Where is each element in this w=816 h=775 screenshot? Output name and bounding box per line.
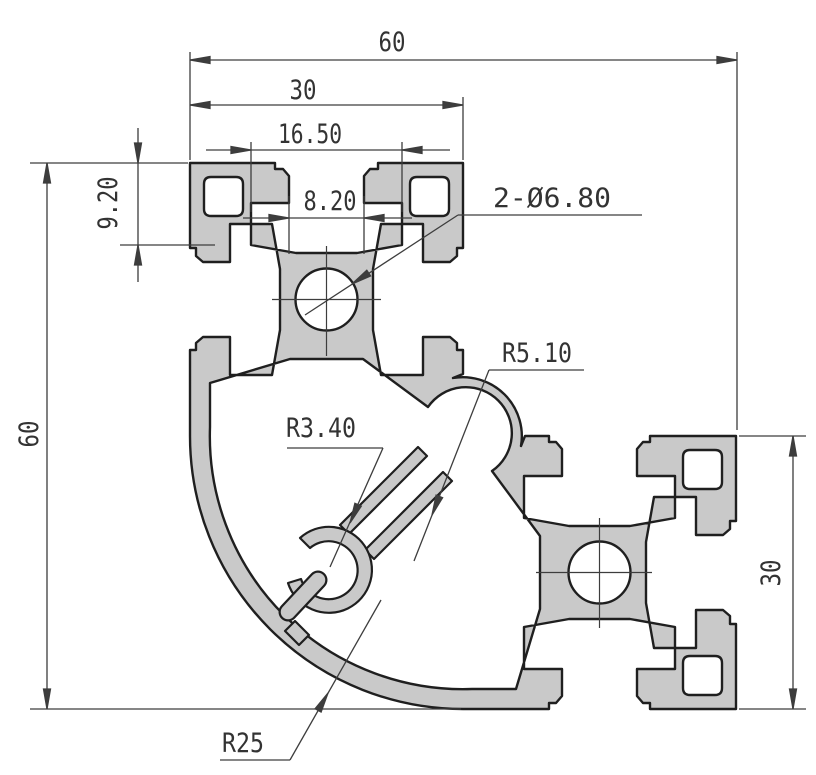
dim-slot-depth-label: 9.20 (93, 177, 124, 230)
leader-radius-boss: R3.40 (286, 413, 383, 567)
drawing-canvas: 60 30 16.50 8.20 9.20 (0, 0, 816, 775)
arrow-top (790, 436, 797, 456)
dim-overall-height: 60 (14, 163, 51, 709)
arrow-top (135, 143, 142, 163)
arrow-bottom (44, 689, 51, 709)
dim-arm-height: 30 (756, 436, 797, 709)
dim-overall-width: 60 (190, 27, 737, 64)
arrow-top (44, 163, 51, 183)
dim-arm-width-label: 30 (290, 75, 317, 106)
leader-center-holes-label: 2-Ø6.80 (493, 183, 611, 214)
arrow-left (190, 102, 210, 109)
arrow-left (231, 147, 251, 154)
arrow-bottom (790, 689, 797, 709)
leader-corner-radius-label: R25 (222, 728, 264, 759)
arrow-bottom (135, 245, 142, 265)
arrow-right (717, 57, 737, 64)
arrow-right (443, 102, 463, 109)
profile-technical-drawing: 60 30 16.50 8.20 9.20 (0, 0, 816, 775)
arrow-left (269, 215, 289, 222)
arrow-right (364, 215, 384, 222)
dim-overall-height-label: 60 (14, 421, 45, 448)
arrow-right (402, 147, 422, 154)
screw-channel-and-boss (285, 447, 452, 645)
dim-overall-width-label: 60 (379, 27, 406, 58)
dim-slot-opening-label: 8.20 (304, 186, 357, 217)
leader-radius-slot-label: R5.10 (502, 338, 572, 369)
dim-slot-inner-width: 16.50 (206, 119, 450, 154)
channel-wall-lower (365, 472, 452, 559)
leader-radius-boss-label: R3.40 (286, 413, 356, 444)
arrow-left (190, 57, 210, 64)
dim-slot-inner-width-label: 16.50 (278, 119, 342, 150)
dim-arm-height-label: 30 (756, 560, 787, 587)
dim-arm-width: 30 (190, 75, 463, 109)
dim-slot-depth: 9.20 (93, 128, 142, 282)
channel-wall-upper (340, 447, 427, 534)
